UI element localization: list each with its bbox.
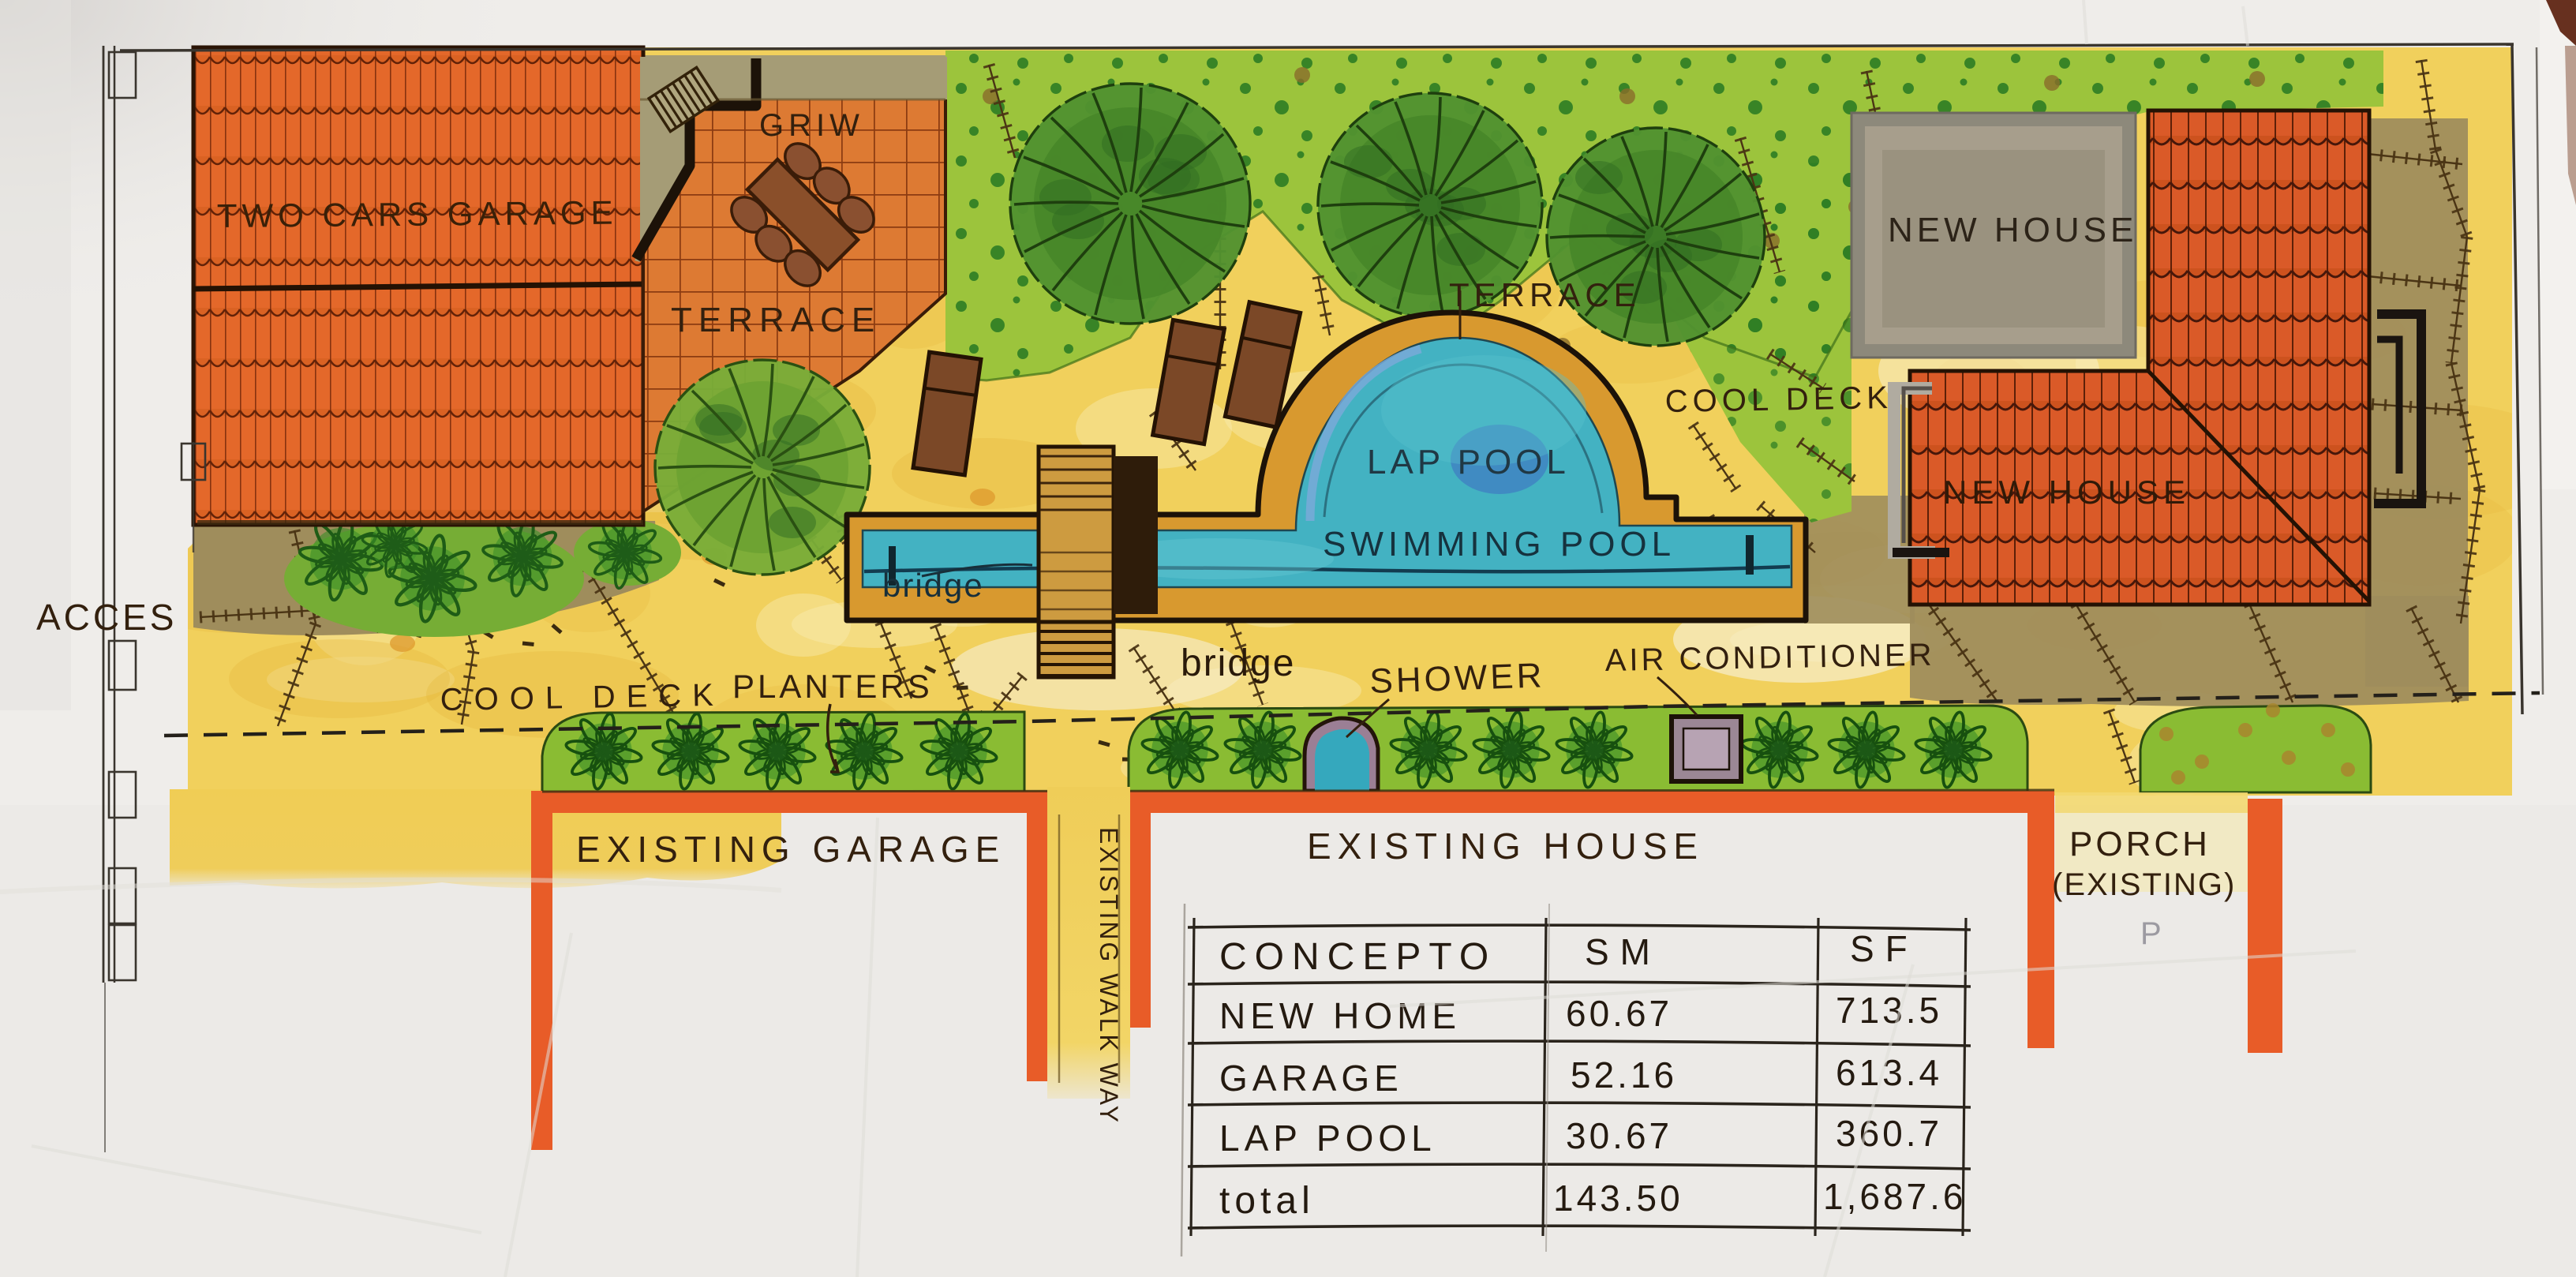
svg-text:NEW HOME: NEW HOME — [1219, 995, 1461, 1036]
svg-text:P: P — [2140, 916, 2162, 951]
svg-text:CONCEPTO: CONCEPTO — [1219, 936, 1496, 978]
svg-text:total: total — [1219, 1180, 1315, 1222]
svg-text:30.67: 30.67 — [1566, 1115, 1672, 1156]
svg-text:EXISTING WALK WAY: EXISTING WALK WAY — [1095, 827, 1123, 1125]
svg-text:613.4: 613.4 — [1836, 1052, 1942, 1093]
svg-text:bridge: bridge — [1181, 642, 1295, 684]
svg-text:NEW HOUSE: NEW HOUSE — [1888, 211, 2137, 249]
svg-text:AIR CONDITIONER: AIR CONDITIONER — [1604, 638, 1935, 678]
svg-text:COOL DECK: COOL DECK — [1664, 380, 1893, 419]
svg-text:LAP POOL: LAP POOL — [1219, 1118, 1436, 1159]
svg-text:TERRACE: TERRACE — [671, 301, 881, 339]
svg-text:143.50: 143.50 — [1553, 1178, 1683, 1219]
svg-text:EXISTING HOUSE: EXISTING HOUSE — [1307, 826, 1704, 867]
svg-text:60.67: 60.67 — [1566, 993, 1672, 1034]
svg-text:NEW HOUSE: NEW HOUSE — [1943, 474, 2190, 511]
svg-text:SWIMMING POOL: SWIMMING POOL — [1323, 525, 1676, 564]
svg-text:ACCES: ACCES — [36, 597, 177, 638]
svg-text:SM: SM — [1585, 931, 1661, 972]
svg-text:SHOWER: SHOWER — [1369, 656, 1546, 701]
svg-text:GARAGE: GARAGE — [1219, 1058, 1403, 1099]
svg-text:PLANTERS: PLANTERS — [732, 668, 933, 705]
svg-text:SF: SF — [1850, 928, 1919, 969]
svg-text:TWO CARS GARAGE: TWO CARS GARAGE — [217, 194, 618, 234]
svg-text:52.16: 52.16 — [1571, 1054, 1677, 1095]
svg-text:GRIW: GRIW — [759, 108, 864, 143]
svg-text:TERRACE: TERRACE — [1449, 276, 1641, 313]
svg-text:360.7: 360.7 — [1836, 1113, 1942, 1154]
svg-text:COOL DECK: COOL DECK — [440, 678, 724, 717]
svg-text:bridge: bridge — [882, 567, 984, 604]
svg-text:LAP POOL: LAP POOL — [1367, 443, 1570, 481]
svg-text:(EXISTING): (EXISTING) — [2052, 867, 2236, 902]
svg-text:EXISTING GARAGE: EXISTING GARAGE — [576, 829, 1005, 870]
svg-text:713.5: 713.5 — [1836, 990, 1942, 1031]
svg-text:PORCH: PORCH — [2069, 825, 2211, 863]
